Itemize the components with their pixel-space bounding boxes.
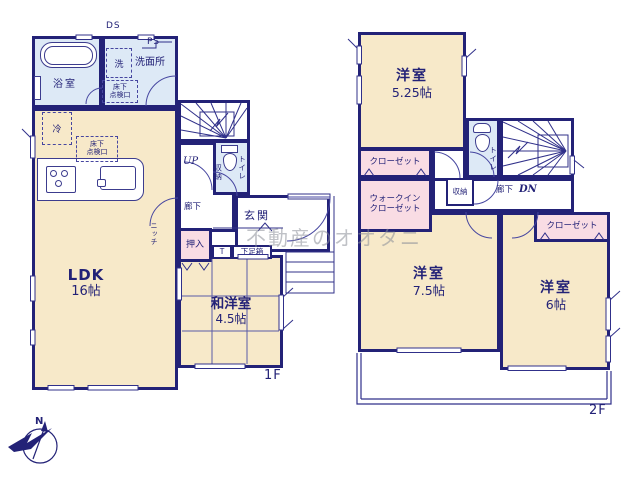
storage1-label: 収納 bbox=[213, 164, 222, 181]
closet1-label: クローゼット bbox=[369, 158, 420, 168]
closet2-label: クローゼット bbox=[546, 222, 597, 232]
toilet-tank-1f bbox=[221, 145, 238, 153]
toilet1-label: トイレ bbox=[237, 155, 246, 181]
up-label: UP bbox=[183, 156, 198, 168]
underfloor-hatch-washroom: 床下 点検口 bbox=[102, 80, 138, 103]
bedroom2-label: 洋室 bbox=[384, 266, 474, 283]
fridge-box: 冷 bbox=[42, 112, 72, 145]
bedroom3-label-group: 洋室 6帖 bbox=[512, 280, 600, 312]
ds-label: DS bbox=[106, 21, 121, 31]
bedroom1-size: 5.25帖 bbox=[366, 85, 458, 100]
hatch-label-line2: 点検口 bbox=[87, 149, 108, 157]
storage-box-2f: 収納 bbox=[446, 178, 474, 206]
room-stairs-2f bbox=[500, 118, 574, 178]
washroom-label: 洗面所 bbox=[135, 57, 165, 69]
bedroom1-label-group: 洋室 5.25帖 bbox=[366, 68, 458, 100]
washer-box: 洗 bbox=[106, 48, 132, 78]
floor1-label: 1F bbox=[264, 369, 282, 384]
toilet2-label: トイレ bbox=[488, 146, 497, 172]
sink-faucet bbox=[97, 179, 106, 187]
ldk-size: 16帖 bbox=[40, 284, 132, 300]
hallway1-label: 廊下 bbox=[184, 203, 201, 213]
washitsu-size: 4.5帖 bbox=[186, 312, 276, 326]
oshiire-label: 押入 bbox=[186, 240, 204, 250]
bedroom3-size: 6帖 bbox=[512, 297, 600, 312]
toilet-tank-2f bbox=[473, 123, 491, 133]
room-oshiire-1f: 押入 bbox=[178, 228, 212, 262]
bathroom-label: 浴室 bbox=[53, 79, 77, 91]
stove-burner bbox=[55, 180, 62, 187]
bathtub-inner bbox=[44, 46, 93, 65]
fridge-label: 冷 bbox=[52, 122, 61, 135]
bedroom2-label-group: 洋室 7.5帖 bbox=[384, 266, 474, 298]
ldk-label-group: LDK 16帖 bbox=[40, 266, 132, 300]
wic-label-line2: クローゼット bbox=[369, 205, 420, 215]
floor2-label: 2F bbox=[589, 404, 607, 419]
hallway2-label: 廊下 bbox=[496, 186, 513, 196]
entrance-label: 玄関 bbox=[244, 210, 270, 223]
washitsu-label-group: 和洋室 4.5帖 bbox=[186, 296, 276, 327]
compass-icon bbox=[8, 421, 57, 463]
ps-label: PS bbox=[147, 37, 160, 47]
compass-north-label: N bbox=[35, 416, 43, 428]
stove-burner bbox=[61, 170, 68, 177]
room-closet-6-2f: クローゼット bbox=[534, 212, 610, 242]
bedroom3-label: 洋室 bbox=[512, 280, 600, 297]
t-box-1f: T bbox=[212, 245, 232, 259]
room-closet-525-2f: クローゼット bbox=[358, 148, 432, 178]
washitsu-label: 和洋室 bbox=[186, 296, 276, 312]
t-box-label: T bbox=[220, 248, 225, 257]
underfloor-hatch-ldk: 床下 点検口 bbox=[76, 136, 118, 162]
niche-label: ニッチ bbox=[150, 222, 158, 246]
bath-counter bbox=[34, 76, 41, 100]
bedroom1-label: 洋室 bbox=[366, 68, 458, 85]
hatch-label-line2: 点検口 bbox=[110, 92, 131, 100]
bedroom2-size: 7.5帖 bbox=[384, 283, 474, 298]
floorplan-canvas: 押入 T 下足箱 クローゼット ウォークイン クローゼット クローゼット 収納 bbox=[0, 0, 640, 480]
watermark: 不動産のオオタニ bbox=[246, 222, 422, 251]
storage2-label: 収納 bbox=[453, 188, 468, 197]
stove-burner bbox=[50, 170, 57, 177]
washer-label: 洗 bbox=[114, 57, 123, 70]
room-stairs-1f bbox=[178, 100, 250, 142]
dn-label: DN bbox=[519, 184, 537, 196]
ldk-label: LDK bbox=[40, 266, 132, 284]
